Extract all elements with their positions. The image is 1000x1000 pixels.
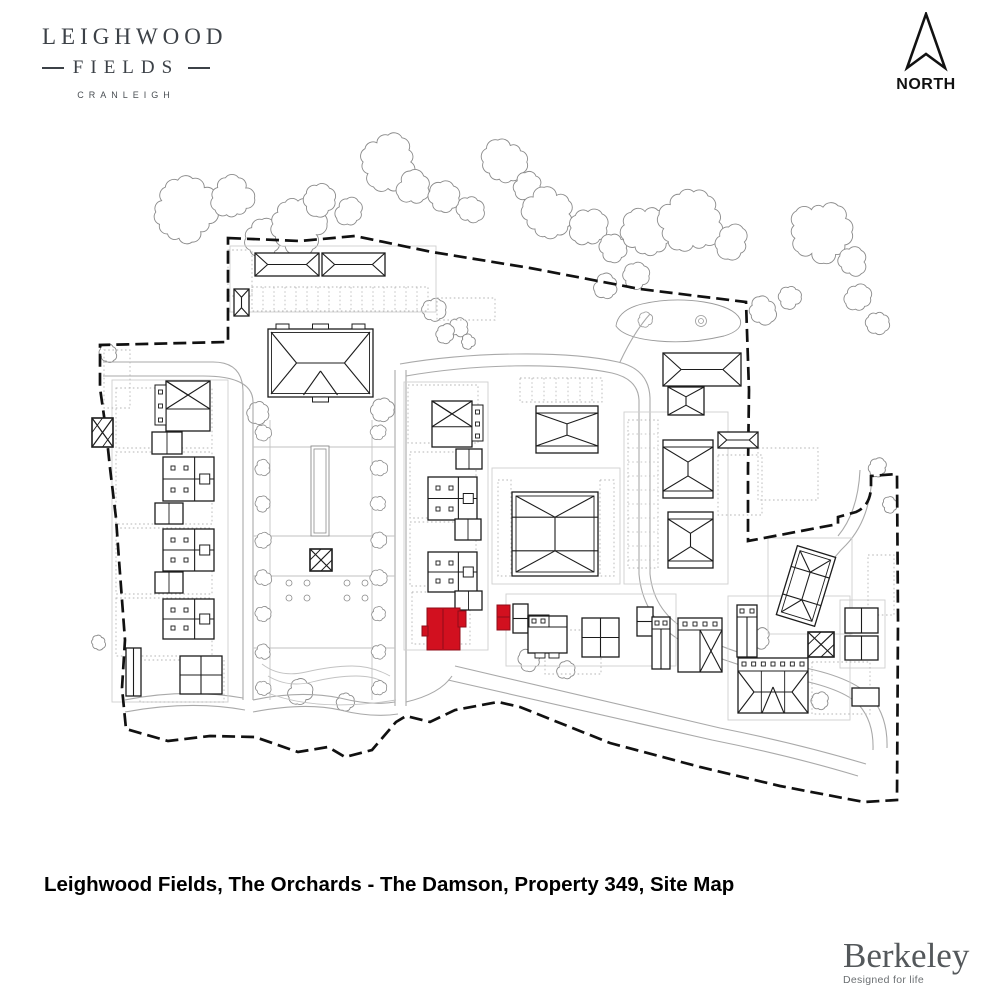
building-garage: [155, 503, 183, 524]
tree: [838, 247, 866, 277]
building-terrace: [163, 599, 214, 639]
tree: [844, 284, 872, 310]
building-garage: [455, 519, 481, 540]
tree: [811, 692, 828, 710]
building-manor: [268, 324, 373, 402]
building-garage: [152, 432, 182, 454]
tree: [594, 273, 617, 299]
building-terrace: [163, 457, 214, 501]
tree: [99, 344, 117, 362]
berkeley-tagline: Designed for life: [843, 974, 973, 986]
highlighted-plot-shape[interactable]: [458, 611, 466, 627]
building-court: [512, 492, 598, 576]
building-tallD: [652, 617, 670, 669]
building-tallD: [737, 605, 757, 657]
page-title: Leighwood Fields, The Orchards - The Dam…: [44, 873, 734, 897]
highlighted-plot-shape[interactable]: [422, 626, 428, 636]
building-terrace: [428, 477, 477, 520]
tree: [335, 197, 362, 225]
berkeley-logo: Berkeley Designed for life: [843, 938, 973, 986]
building-garage: [455, 591, 482, 610]
building-shopA: [528, 615, 567, 658]
site-boundary: [100, 236, 898, 802]
building-terrace: [428, 552, 477, 592]
building-garage: [155, 572, 183, 593]
building-court: [776, 546, 835, 627]
building-hatch: [310, 549, 332, 571]
building-xtop: [432, 401, 483, 447]
building-plain: [845, 608, 878, 633]
building-grid2: [582, 618, 619, 657]
building-apt: [663, 440, 713, 498]
road: [125, 705, 245, 712]
building-plain: [513, 604, 528, 633]
building-hipH: [663, 353, 741, 386]
tree: [749, 296, 776, 325]
tree: [436, 324, 455, 344]
dotted-areas-layer: [104, 250, 894, 714]
building-terrace: [163, 529, 214, 571]
building-apt: [668, 512, 713, 568]
road: [253, 706, 398, 715]
tree: [154, 176, 221, 244]
building-apt: [536, 406, 598, 453]
site-map-page: LEIGHWOOD FIELDS CRANLEIGH NORTH Leighwo…: [0, 0, 1000, 1000]
building-plain: [637, 607, 653, 636]
building-grid2: [180, 656, 222, 694]
building-hipH: [718, 432, 758, 448]
building-plain: [852, 688, 879, 706]
tree: [557, 661, 575, 679]
tree: [422, 298, 446, 321]
building-garage: [456, 449, 482, 469]
building-hatch: [808, 632, 834, 657]
tree: [303, 183, 335, 217]
building-hipV: [234, 289, 249, 316]
berkeley-wordmark: Berkeley: [843, 938, 973, 974]
tree: [336, 693, 354, 711]
building-terraceHip: [738, 658, 808, 713]
tree: [370, 398, 394, 422]
tree: [247, 401, 269, 424]
tree: [211, 174, 255, 216]
tree: [461, 334, 475, 349]
tree: [865, 312, 889, 334]
road: [406, 676, 452, 702]
building-hipH: [322, 253, 385, 276]
building-plain: [126, 648, 141, 696]
road: [838, 470, 860, 536]
highlighted-plot-349[interactable]: [422, 605, 510, 650]
tree: [883, 497, 897, 514]
road: [620, 314, 650, 362]
site-map: [0, 0, 1000, 1000]
tree: [778, 286, 801, 309]
building-semiX: [678, 618, 722, 672]
building-hipV: [668, 387, 704, 415]
building-xtop: [155, 381, 210, 431]
building-hatch: [92, 418, 113, 447]
tree: [92, 635, 106, 650]
tree: [428, 181, 460, 213]
building-hipH: [255, 253, 319, 276]
building-plain: [845, 636, 878, 660]
tree: [456, 197, 484, 223]
